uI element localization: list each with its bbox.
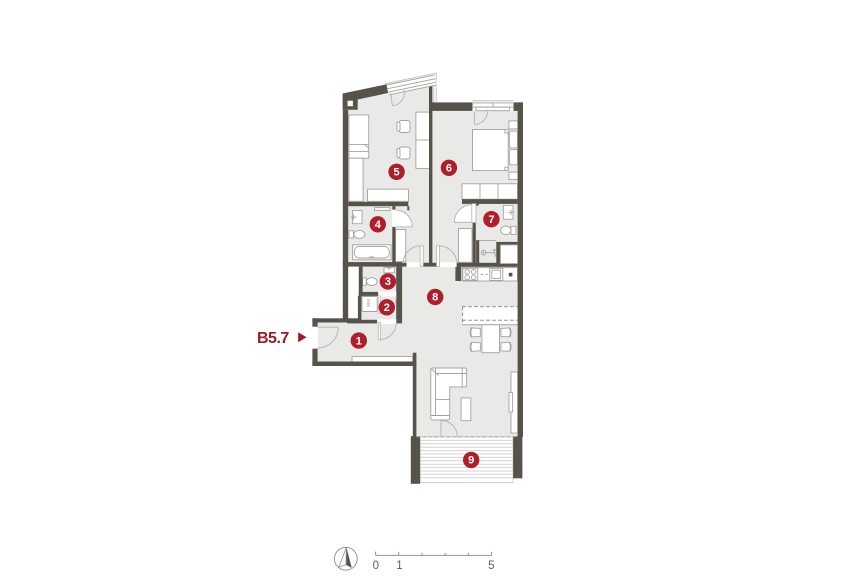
svg-text:4: 4: [375, 219, 382, 231]
svg-text:7: 7: [488, 214, 494, 226]
svg-text:2: 2: [384, 302, 390, 314]
svg-text:5: 5: [394, 167, 400, 179]
svg-text:0: 0: [373, 560, 379, 572]
svg-text:WM: WM: [366, 299, 371, 307]
svg-text:9: 9: [468, 455, 474, 467]
svg-text:6: 6: [446, 163, 452, 175]
svg-text:3: 3: [385, 276, 391, 288]
svg-text:1: 1: [396, 560, 402, 572]
svg-text:1: 1: [356, 335, 362, 347]
svg-text:B5.7: B5.7: [257, 330, 289, 347]
svg-text:8: 8: [432, 292, 438, 304]
svg-text:5: 5: [488, 560, 494, 572]
